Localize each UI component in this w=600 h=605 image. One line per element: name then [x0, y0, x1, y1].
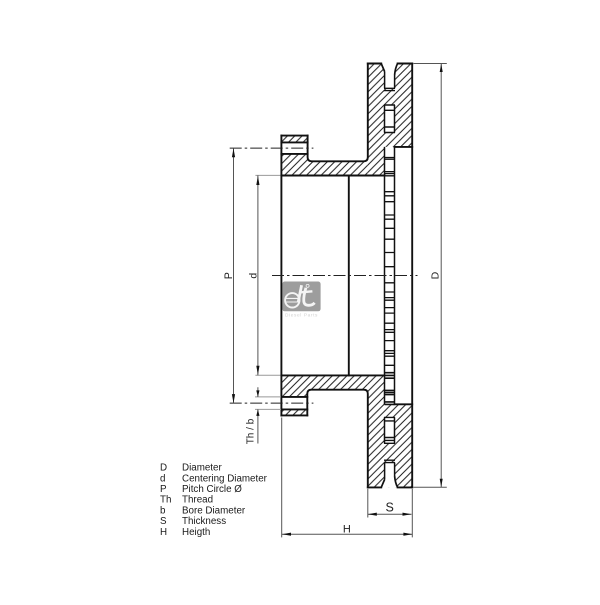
svg-text:P: P — [223, 272, 235, 279]
svg-text:P: P — [160, 484, 167, 495]
svg-text:Centering Diameter: Centering Diameter — [182, 473, 268, 484]
svg-text:Th / b: Th / b — [246, 418, 257, 444]
svg-text:d: d — [248, 273, 259, 279]
svg-text:H: H — [160, 527, 167, 538]
svg-text:S: S — [386, 501, 394, 515]
svg-text:Th: Th — [160, 495, 171, 506]
svg-text:d: d — [160, 473, 165, 484]
svg-text:D: D — [430, 271, 442, 279]
svg-text:D: D — [160, 463, 167, 474]
svg-text:Thread: Thread — [182, 495, 213, 506]
svg-text:Diameter: Diameter — [182, 463, 222, 474]
svg-text:Heigth: Heigth — [182, 527, 210, 538]
svg-text:Bore Diameter: Bore Diameter — [182, 505, 246, 516]
svg-text:Thickness: Thickness — [182, 516, 226, 527]
svg-text:Diesel Parts: Diesel Parts — [285, 312, 318, 318]
svg-text:Pitch Circle Ø: Pitch Circle Ø — [182, 484, 242, 495]
svg-text:H: H — [343, 524, 351, 536]
svg-text:b: b — [160, 505, 166, 516]
svg-text:S: S — [160, 516, 167, 527]
